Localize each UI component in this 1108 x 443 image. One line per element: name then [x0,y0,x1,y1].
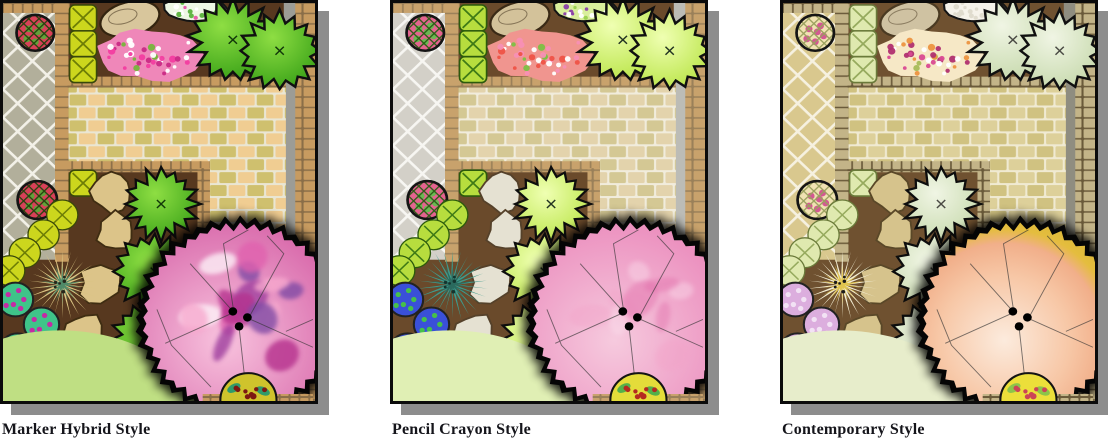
plan-image-frame [0,0,318,404]
caption-pencil-crayon: Pencil Crayon Style [390,421,708,439]
landscape-plan-rendering-marker-hybrid [3,3,315,401]
landscape-plan-rendering-pencil-crayon [393,3,705,401]
style-comparison-page: Marker Hybrid Style Pencil Crayon Style … [0,0,1108,443]
panel-contemporary: Contemporary Style [780,0,1098,439]
panel-pencil-crayon: Pencil Crayon Style [390,0,708,439]
caption-contemporary: Contemporary Style [780,421,1098,439]
panel-marker-hybrid: Marker Hybrid Style [0,0,318,439]
plan-image-frame [390,0,708,404]
landscape-plan-rendering-contemporary [783,3,1095,401]
plan-image-frame [780,0,1098,404]
caption-marker-hybrid: Marker Hybrid Style [0,421,318,439]
